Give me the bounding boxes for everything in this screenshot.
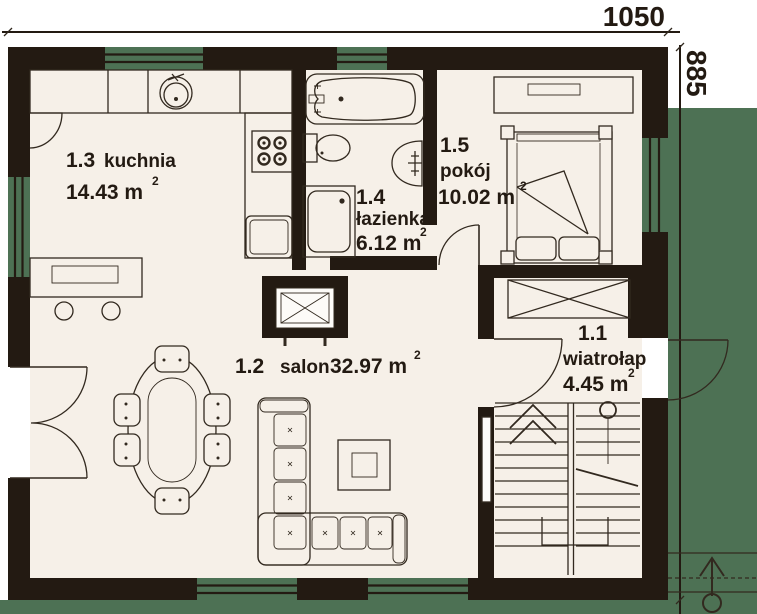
- dining-table: [128, 356, 216, 504]
- window-room-right: [642, 138, 668, 232]
- dimension-height-label: 885: [681, 50, 712, 97]
- chair: [204, 394, 230, 426]
- room-name: kuchnia: [104, 151, 176, 172]
- terrace-area: [668, 108, 757, 614]
- chair: [155, 346, 189, 372]
- room-area: 4.45 m: [563, 373, 628, 396]
- window-kitchen-left: [8, 177, 30, 277]
- room-area-sup: 2: [520, 179, 527, 193]
- room-area-sup: 2: [414, 348, 421, 362]
- pillow: [559, 237, 599, 260]
- room-area: 32.97 m: [330, 355, 407, 378]
- dimension-line-top: [2, 28, 680, 36]
- room-area: 6.12 m: [356, 232, 421, 255]
- room-number: 1.5: [440, 134, 470, 157]
- room-name: salon: [280, 357, 330, 378]
- chair: [155, 488, 189, 514]
- balcony-door-opening: [8, 367, 30, 478]
- window-kitchen-top: [105, 47, 203, 70]
- dimension-width-label: 1050: [603, 1, 665, 32]
- window-salon-bottom-right: [368, 578, 468, 600]
- chair: [114, 394, 140, 426]
- floor-plan-page: 1.3 kuchnia 14.43 m 2 1.4 łazienka 6.12 …: [0, 0, 757, 614]
- room-number: 1.2: [235, 355, 264, 378]
- room-area-sup: 2: [152, 174, 159, 188]
- radiator: [482, 417, 491, 502]
- room-number: 1.4: [356, 186, 386, 209]
- pillow: [516, 237, 556, 260]
- room-area-sup: 2: [420, 225, 427, 239]
- window-salon-bottom-left: [197, 578, 297, 600]
- chair: [114, 434, 140, 466]
- room-number: 1.3: [66, 149, 95, 172]
- floor-plan: 1.3 kuchnia 14.43 m 2 1.4 łazienka 6.12 …: [0, 0, 757, 614]
- ground-strip: [0, 600, 757, 614]
- room-area: 14.43 m: [66, 181, 143, 204]
- room-name: pokój: [440, 161, 491, 182]
- window-bathroom-top: [337, 47, 387, 70]
- room-area: 10.02 m: [438, 186, 515, 209]
- fireplace: [262, 276, 348, 346]
- chair: [204, 434, 230, 466]
- room-area-sup: 2: [628, 366, 635, 380]
- room-number: 1.1: [578, 322, 608, 345]
